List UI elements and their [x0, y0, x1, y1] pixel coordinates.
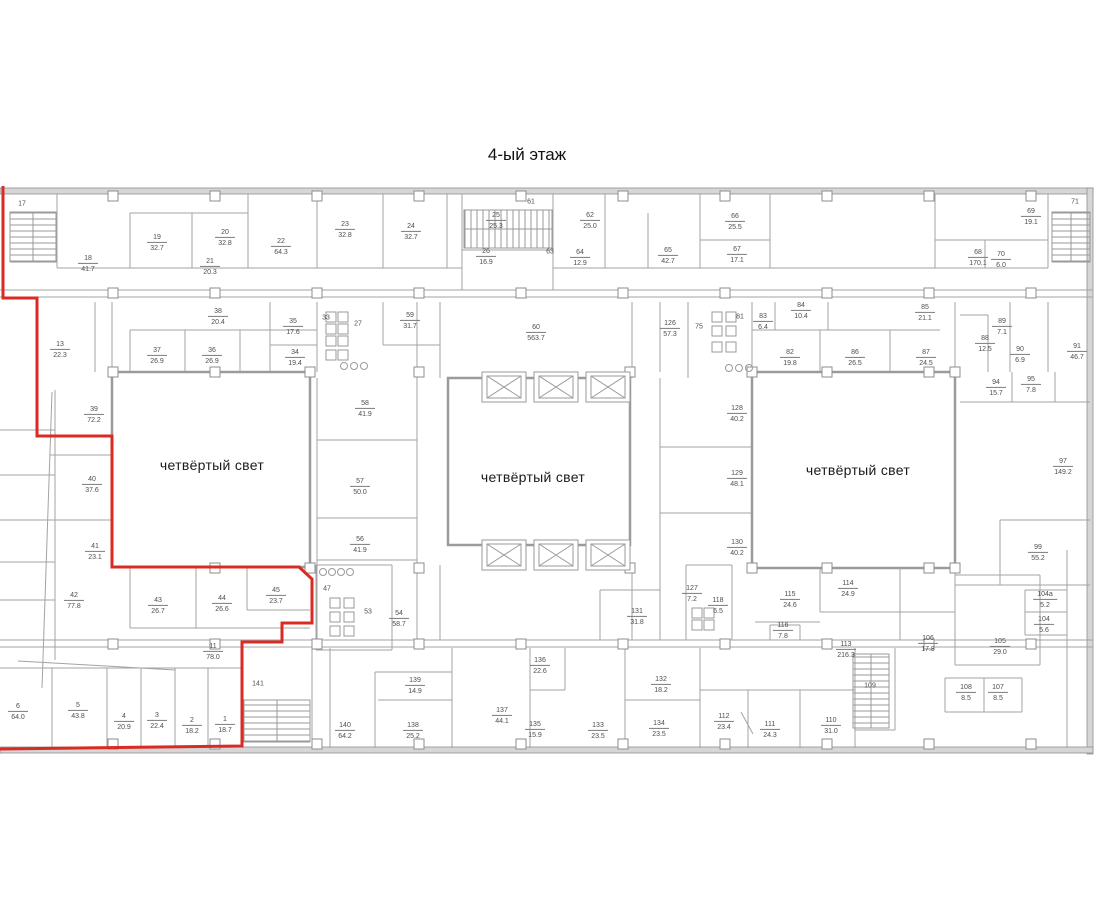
stairs-61-icon — [464, 210, 552, 248]
partition-walls — [0, 194, 1090, 748]
floor-plan-page: 171841.71932.72032.82120.32264.32332.824… — [0, 0, 1100, 900]
elevator-icon — [534, 372, 578, 402]
corridor-walls — [0, 290, 1093, 647]
stairs-109-icon — [853, 654, 889, 728]
stairs-71-icon — [1052, 212, 1090, 262]
elevator-icon — [482, 540, 526, 570]
elevator-bank — [482, 372, 630, 570]
floor-plan-drawing — [0, 0, 1100, 900]
stairs-17-icon — [10, 212, 56, 262]
elevator-icon — [586, 540, 630, 570]
stairs-141-icon — [244, 700, 310, 742]
elevator-icon — [482, 372, 526, 402]
floor-title: 4-ый этаж — [488, 145, 566, 165]
structural-columns — [108, 191, 1036, 749]
elevator-icon — [586, 372, 630, 402]
elevator-icon — [534, 540, 578, 570]
red-outline — [0, 186, 312, 749]
